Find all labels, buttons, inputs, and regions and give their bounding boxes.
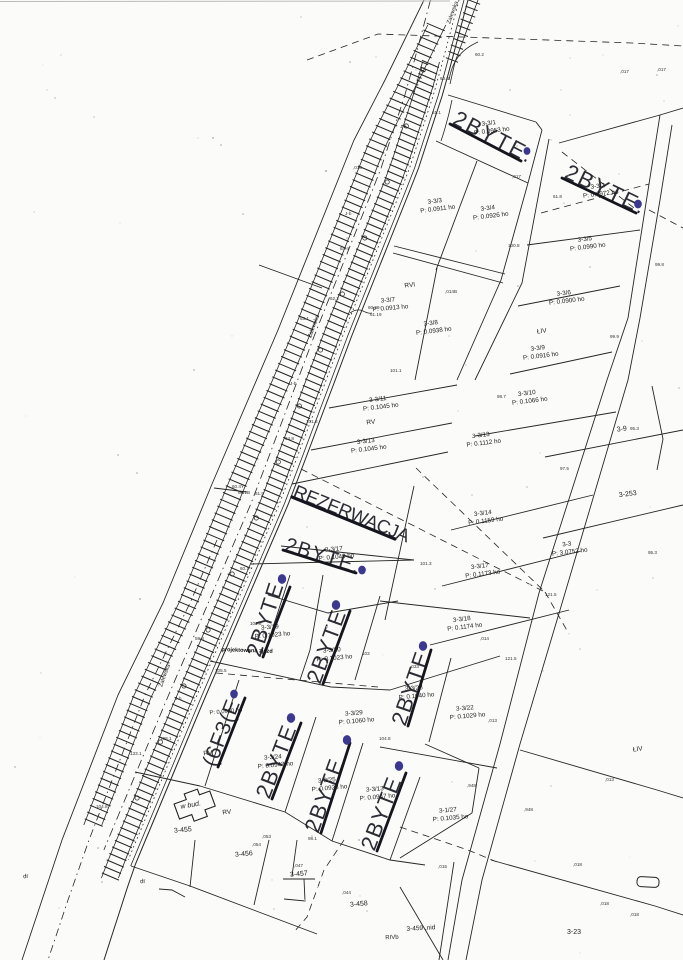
svg-text:2BYTE.: 2BYTE. <box>449 106 538 169</box>
svg-text:,033: ,033 <box>410 664 419 669</box>
svg-text:P: 0.0911 ho: P: 0.0911 ho <box>420 204 456 215</box>
svg-text:60.4Y: 60.4Y <box>232 484 244 489</box>
svg-text:J-b: J-b <box>400 124 407 129</box>
svg-text:3-23: 3-23 <box>567 929 581 936</box>
svg-text:3-458: 3-458 <box>350 900 369 909</box>
svg-text:P: 0.1045 ho: P: 0.1045 ho <box>363 401 400 412</box>
svg-text:99.8: 99.8 <box>655 262 664 267</box>
svg-text:97.5: 97.5 <box>560 466 569 471</box>
svg-text:101.1: 101.1 <box>390 368 402 373</box>
svg-text:,044: ,044 <box>342 890 351 895</box>
svg-text:99.9: 99.9 <box>610 334 619 339</box>
svg-text:,017: ,017 <box>512 174 521 179</box>
svg-text:121.5: 121.5 <box>545 592 557 597</box>
svg-text:P: 0.1060 ho: P: 0.1060 ho <box>338 716 375 726</box>
svg-text:3-457: 3-457 <box>290 870 309 879</box>
svg-text:3-456: 3-456 <box>235 850 254 859</box>
svg-text:101.8: 101.8 <box>250 621 262 626</box>
svg-text:dr: dr <box>140 879 146 886</box>
svg-text:J-b: J-b <box>290 381 297 386</box>
svg-text:101.3: 101.3 <box>420 561 432 566</box>
svg-text:105.5: 105.5 <box>215 668 227 673</box>
svg-text:3-9: 3-9 <box>616 425 627 433</box>
svg-text:,013: ,013 <box>488 718 497 723</box>
svg-text:3-459 ,nid: 3-459 ,nid <box>406 924 436 933</box>
svg-text:P: 3.0752 ho: P: 3.0752 ho <box>552 546 589 557</box>
svg-text:61.9: 61.9 <box>255 491 264 496</box>
svg-text:95.3: 95.3 <box>648 550 657 555</box>
svg-text:P: 0.1066 ho: P: 0.1066 ho <box>512 395 549 406</box>
svg-text:60.3: 60.3 <box>440 76 449 81</box>
svg-text:P: 0.1029 ho: P: 0.1029 ho <box>449 711 486 721</box>
svg-text:60.29: 60.29 <box>368 305 380 310</box>
svg-text:61.19: 61.19 <box>370 312 382 317</box>
svg-text:64.4: 64.4 <box>340 246 349 251</box>
svg-text:64.8: 64.8 <box>285 436 294 441</box>
svg-text:P: 0.0990 ho: P: 0.0990 ho <box>570 241 607 252</box>
svg-text:100.8: 100.8 <box>508 243 520 248</box>
svg-text:,948: ,948 <box>467 783 476 788</box>
svg-text:,017: ,017 <box>620 69 629 74</box>
svg-text:,948: ,948 <box>524 807 533 812</box>
svg-text:108.1: 108.1 <box>160 736 172 741</box>
svg-text:P: 0.0926 ho: P: 0.0926 ho <box>473 210 510 221</box>
svg-text:63.1: 63.1 <box>300 316 309 321</box>
svg-text:121.5: 121.5 <box>505 656 517 661</box>
svg-text:3-3: 3-3 <box>562 540 572 548</box>
svg-text:61.8: 61.8 <box>553 194 562 199</box>
svg-text:,017: ,017 <box>657 67 666 72</box>
svg-text:RVI: RVI <box>404 281 416 289</box>
svg-text:,054: ,054 <box>252 842 261 847</box>
svg-text:60.1: 60.1 <box>240 566 249 571</box>
svg-text:projektowana zjazd: projektowana zjazd <box>221 647 273 655</box>
svg-text:,018: ,018 <box>353 165 362 170</box>
svg-text:,018: ,018 <box>600 901 609 906</box>
svg-text:98.7: 98.7 <box>497 394 506 399</box>
svg-text:P: 0.0938 ho: P: 0.0938 ho <box>416 325 453 336</box>
svg-text:P: 0.0916 ho: P: 0.0916 ho <box>523 350 560 361</box>
svg-text:62.2: 62.2 <box>330 296 339 301</box>
svg-text:103: 103 <box>362 651 370 656</box>
svg-text:RV: RV <box>366 418 376 426</box>
svg-text:,018: ,018 <box>573 862 582 867</box>
svg-text:61.1: 61.1 <box>432 110 441 115</box>
svg-text:P: 0.1045 ho: P: 0.1045 ho <box>351 443 388 454</box>
svg-text:J-b: J-b <box>345 211 352 216</box>
svg-text:3-253: 3-253 <box>619 490 638 499</box>
svg-text:59.8: 59.8 <box>195 636 204 641</box>
svg-text:J-b: J-b <box>175 696 182 701</box>
svg-text:RV: RV <box>203 749 213 757</box>
svg-text:,015: ,015 <box>438 864 447 869</box>
svg-text:,047: ,047 <box>294 863 303 868</box>
svg-text:3-455: 3-455 <box>174 826 193 835</box>
svg-text:RV: RV <box>222 808 232 816</box>
svg-text:,013: ,013 <box>605 777 614 782</box>
svg-text:dr: dr <box>23 874 29 881</box>
svg-text:61.1B: 61.1B <box>238 490 250 495</box>
svg-text:3-3/7: 3-3/7 <box>380 296 395 304</box>
svg-text:133.1: 133.1 <box>130 751 142 756</box>
svg-text:104.8: 104.8 <box>379 736 391 741</box>
svg-text:,018: ,018 <box>630 912 639 917</box>
svg-text:,053: ,053 <box>262 834 271 839</box>
svg-text:REZERWACJA: REZERWACJA <box>291 480 414 546</box>
svg-text:104.8: 104.8 <box>96 804 108 809</box>
svg-text:60.2: 60.2 <box>475 52 484 57</box>
svg-text:,014B: ,014B <box>445 289 457 294</box>
svg-text:101.8: 101.8 <box>306 419 318 424</box>
svg-text:RIVb: RIVb <box>385 935 399 942</box>
svg-text:P: 0.1035 ho: P: 0.1035 ho <box>432 813 469 823</box>
svg-text:,014: ,014 <box>480 636 489 641</box>
svg-text:2BYTE: 2BYTE <box>299 755 349 836</box>
svg-text:P: 0.0900 ho: P: 0.0900 ho <box>549 295 586 306</box>
svg-text:ŁIV: ŁIV <box>537 327 548 335</box>
svg-text:95.3: 95.3 <box>630 426 639 431</box>
svg-text:w bud.: w bud. <box>180 800 202 810</box>
svg-text:ŁIV: ŁIV <box>633 745 644 753</box>
svg-text:2BYTE: 2BYTE <box>301 606 351 687</box>
